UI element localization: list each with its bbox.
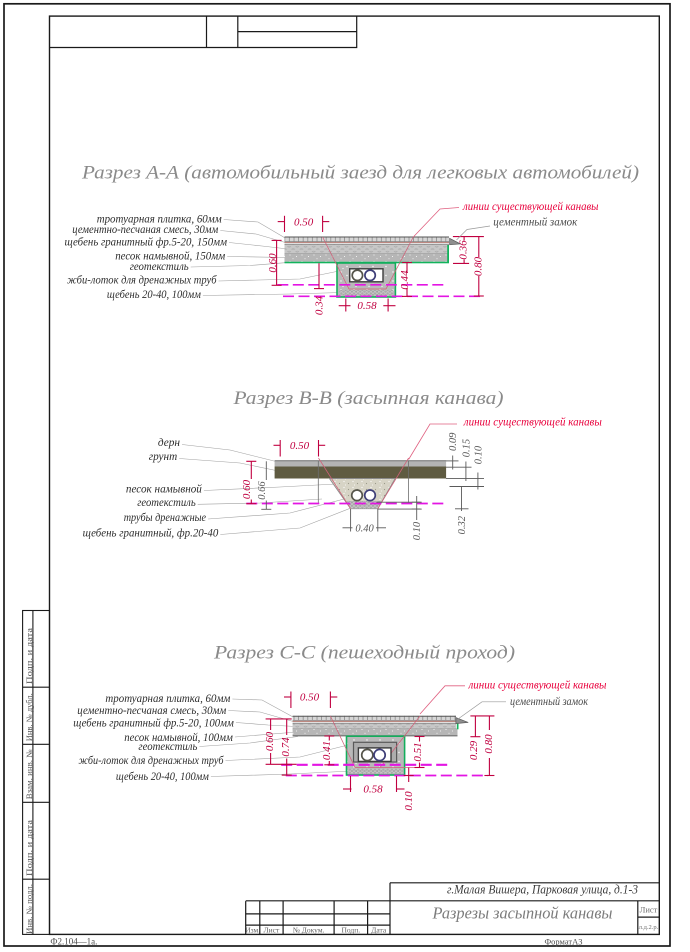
svg-text:грунт: грунт (149, 451, 178, 463)
svg-text:№ Докум.: № Докум. (293, 925, 325, 934)
svg-text:0.60: 0.60 (264, 731, 276, 751)
svg-text:г.Малая Вишера, Парковая улица: г.Малая Вишера, Парковая улица, д.1-3 (447, 882, 638, 896)
svg-text:0.60: 0.60 (241, 479, 253, 499)
svg-text:0.10: 0.10 (412, 521, 423, 540)
svg-text:0.50: 0.50 (294, 216, 314, 228)
svg-text:цементно-песчаная смесь, 30мм: цементно-песчаная смесь, 30мм (72, 224, 218, 236)
svg-text:цементно-песчаная смесь, 30мм: цементно-песчаная смесь, 30мм (77, 705, 226, 717)
svg-text:Инв. № дубл.: Инв. № дубл. (25, 693, 34, 741)
svg-text:0.36: 0.36 (457, 240, 469, 260)
svg-text:Инв. № подл.: Инв. № подл. (25, 884, 34, 934)
svg-text:Подп. и дата: Подп. и дата (25, 819, 34, 876)
svg-text:цементный замок: цементный замок (493, 216, 578, 229)
svg-text:дерн: дерн (158, 437, 181, 449)
svg-text:Разрезы засыпной канавы: Разрезы засыпной канавы (432, 903, 613, 922)
svg-text:ФорматА3: ФорматА3 (544, 936, 582, 946)
svg-text:Лист: Лист (264, 925, 280, 934)
svg-text:линии существующей канавы: линии существующей канавы (463, 415, 602, 428)
svg-text:геотекстиль: геотекстиль (138, 741, 197, 753)
svg-text:тротуарная плитка, 60мм: тротуарная плитка, 60мм (105, 693, 230, 705)
svg-text:Ф2.104—1а.: Ф2.104—1а. (50, 937, 97, 947)
svg-text:0.58: 0.58 (357, 300, 377, 312)
svg-text:0.41: 0.41 (321, 741, 333, 760)
svg-text:0.10: 0.10 (403, 791, 415, 811)
svg-text:щебень 20-40, 100мм: щебень 20-40, 100мм (116, 771, 209, 783)
svg-text:0.10: 0.10 (473, 445, 484, 464)
svg-text:линии существующей канавы: линии существующей канавы (462, 200, 599, 213)
svg-text:Подп. и дата: Подп. и дата (25, 627, 34, 684)
svg-text:Дата: Дата (371, 925, 387, 934)
svg-text:0.44: 0.44 (399, 270, 411, 290)
svg-text:жби-лоток для дренажных труб: жби-лоток для дренажных труб (79, 755, 224, 767)
svg-text:0.60: 0.60 (267, 253, 279, 273)
svg-text:щебень гранитный, фр.20-40: щебень гранитный, фр.20-40 (83, 527, 219, 539)
svg-text:Лист: Лист (640, 905, 658, 915)
svg-text:Подп.: Подп. (341, 925, 360, 934)
svg-text:л.д.2.р.: л.д.2.р. (639, 924, 659, 931)
svg-text:0.32: 0.32 (457, 515, 468, 534)
svg-text:трубы дренажные: трубы дренажные (124, 512, 206, 524)
svg-text:Разрез А-А (автомобильный заез: Разрез А-А (автомобильный заезд для легк… (81, 164, 639, 184)
svg-text:Разрез В-В (засыпная канава): Разрез В-В (засыпная канава) (232, 389, 503, 409)
svg-text:0.09: 0.09 (448, 432, 459, 451)
svg-text:Разрез С-С (пешеходный проход): Разрез С-С (пешеходный проход) (213, 644, 515, 664)
svg-text:0.50: 0.50 (290, 440, 310, 452)
svg-text:0.51: 0.51 (412, 742, 424, 761)
svg-text:Взам. инв. №: Взам. инв. № (25, 749, 34, 799)
svg-text:0.29: 0.29 (468, 740, 480, 760)
svg-text:жби-лоток для дренажных труб: жби-лоток для дренажных труб (67, 275, 217, 287)
svg-text:0.15: 0.15 (461, 439, 472, 457)
svg-text:0.58: 0.58 (363, 784, 383, 796)
svg-text:геотекстиль: геотекстиль (130, 261, 189, 273)
svg-text:0.80: 0.80 (483, 734, 495, 754)
svg-text:геотекстиль: геотекстиль (137, 497, 196, 509)
svg-text:Изм.: Изм. (245, 925, 260, 934)
svg-text:линии существующей канавы: линии существующей канавы (468, 678, 607, 691)
svg-text:0.80: 0.80 (472, 256, 484, 276)
svg-text:песок намывной: песок намывной (126, 483, 202, 495)
svg-text:0.40: 0.40 (355, 523, 374, 534)
svg-text:0.74: 0.74 (280, 737, 292, 757)
svg-text:цементный замок: цементный замок (510, 695, 589, 708)
svg-text:щебень гранитный фр.5-20, 100м: щебень гранитный фр.5-20, 100мм (73, 717, 234, 729)
svg-text:0.50: 0.50 (300, 692, 320, 704)
svg-text:щебень 20-40, 100мм: щебень 20-40, 100мм (107, 289, 201, 301)
svg-text:щебень гранитный фр.5-20, 150м: щебень гранитный фр.5-20, 150мм (65, 236, 228, 248)
svg-text:0.34: 0.34 (314, 295, 326, 315)
svg-text:0.66: 0.66 (257, 481, 268, 500)
